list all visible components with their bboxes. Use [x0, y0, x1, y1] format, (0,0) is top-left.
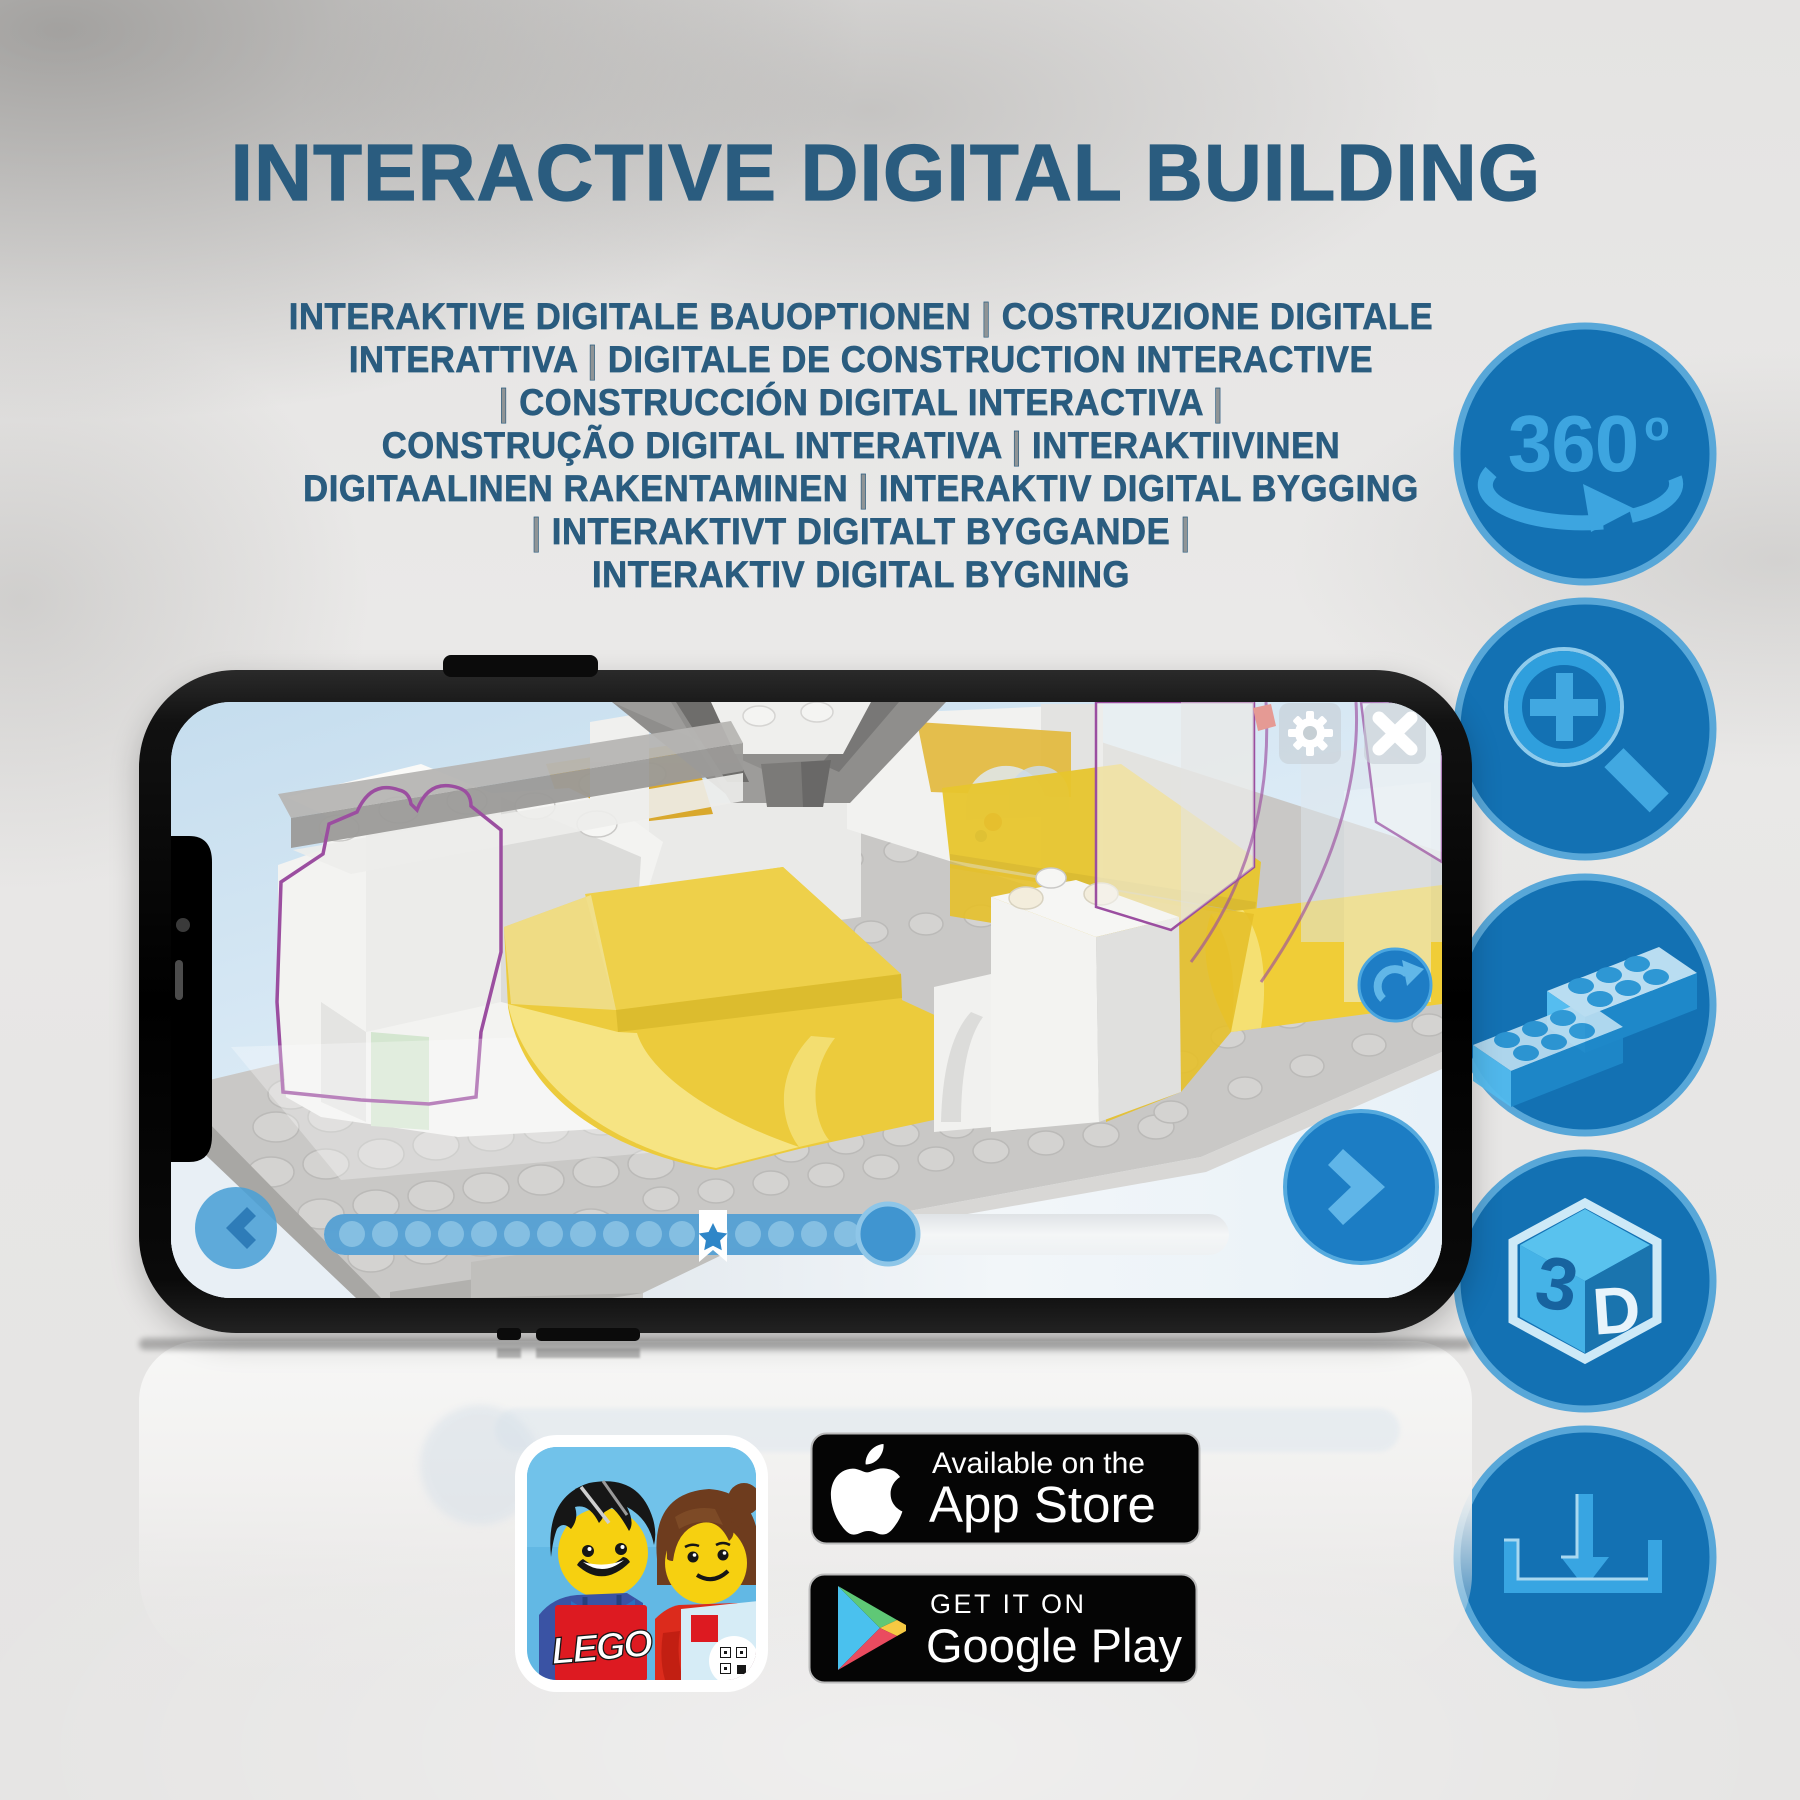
svg-text:GET IT ON: GET IT ON: [930, 1589, 1087, 1619]
svg-text:360: 360: [1508, 399, 1638, 488]
svg-text:LEGO: LEGO: [550, 1623, 654, 1674]
svg-text:Google Play: Google Play: [926, 1619, 1183, 1672]
svg-text:App Store: App Store: [929, 1476, 1156, 1533]
svg-text:D: D: [1590, 1271, 1643, 1348]
svg-text:o: o: [1644, 402, 1670, 449]
